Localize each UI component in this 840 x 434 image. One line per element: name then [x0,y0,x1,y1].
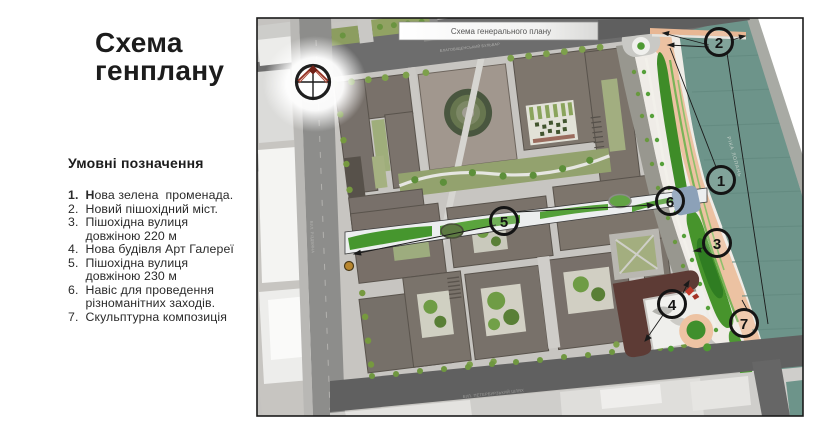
svg-text:4: 4 [668,297,677,314]
svg-text:2: 2 [715,35,723,52]
svg-text:7: 7 [740,316,748,333]
svg-text:1: 1 [717,173,725,190]
svg-text:5: 5 [500,214,508,231]
svg-text:6: 6 [666,194,674,211]
svg-text:Схема генерального плану: Схема генерального плану [451,27,551,36]
svg-text:3: 3 [713,236,721,253]
